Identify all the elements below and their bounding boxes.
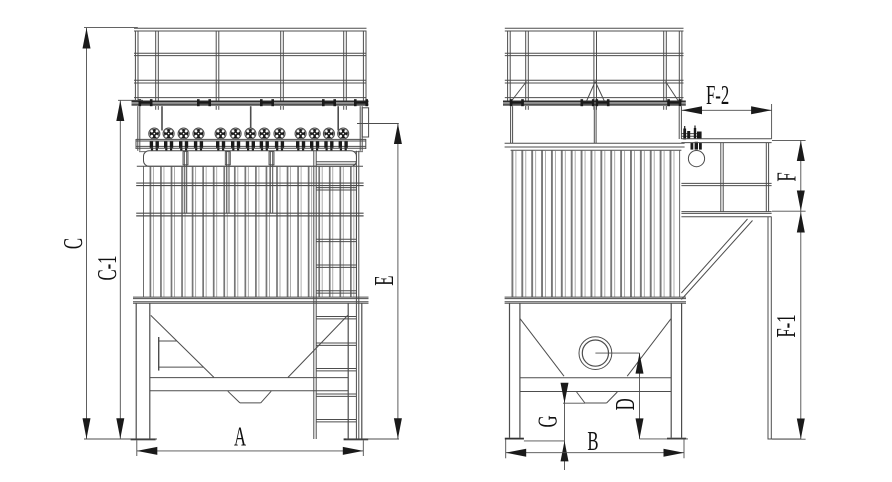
svg-text:A: A [234,422,247,452]
svg-text:F-2: F-2 [706,80,729,110]
svg-text:D: D [610,398,640,410]
svg-text:F: F [771,172,801,181]
svg-text:E: E [369,275,399,285]
svg-text:C-1: C-1 [92,255,122,280]
svg-text:F-1: F-1 [771,314,801,337]
svg-text:C: C [58,238,88,249]
svg-text:G: G [532,415,562,427]
svg-text:B: B [587,426,598,456]
